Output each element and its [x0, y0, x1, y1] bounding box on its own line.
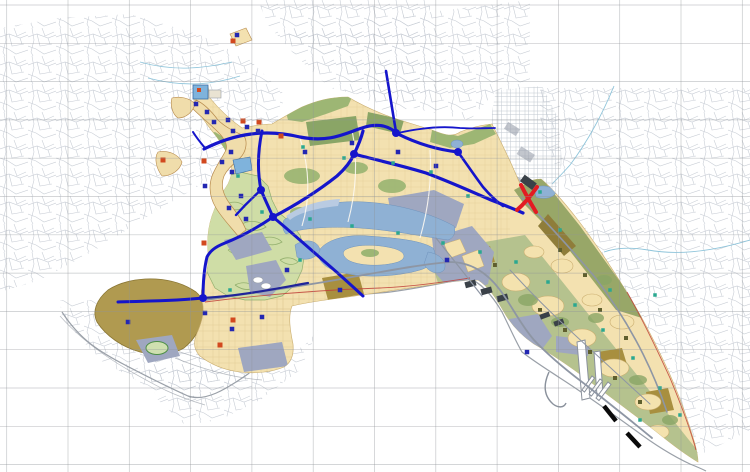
- map-canvas[interactable]: [0, 0, 750, 472]
